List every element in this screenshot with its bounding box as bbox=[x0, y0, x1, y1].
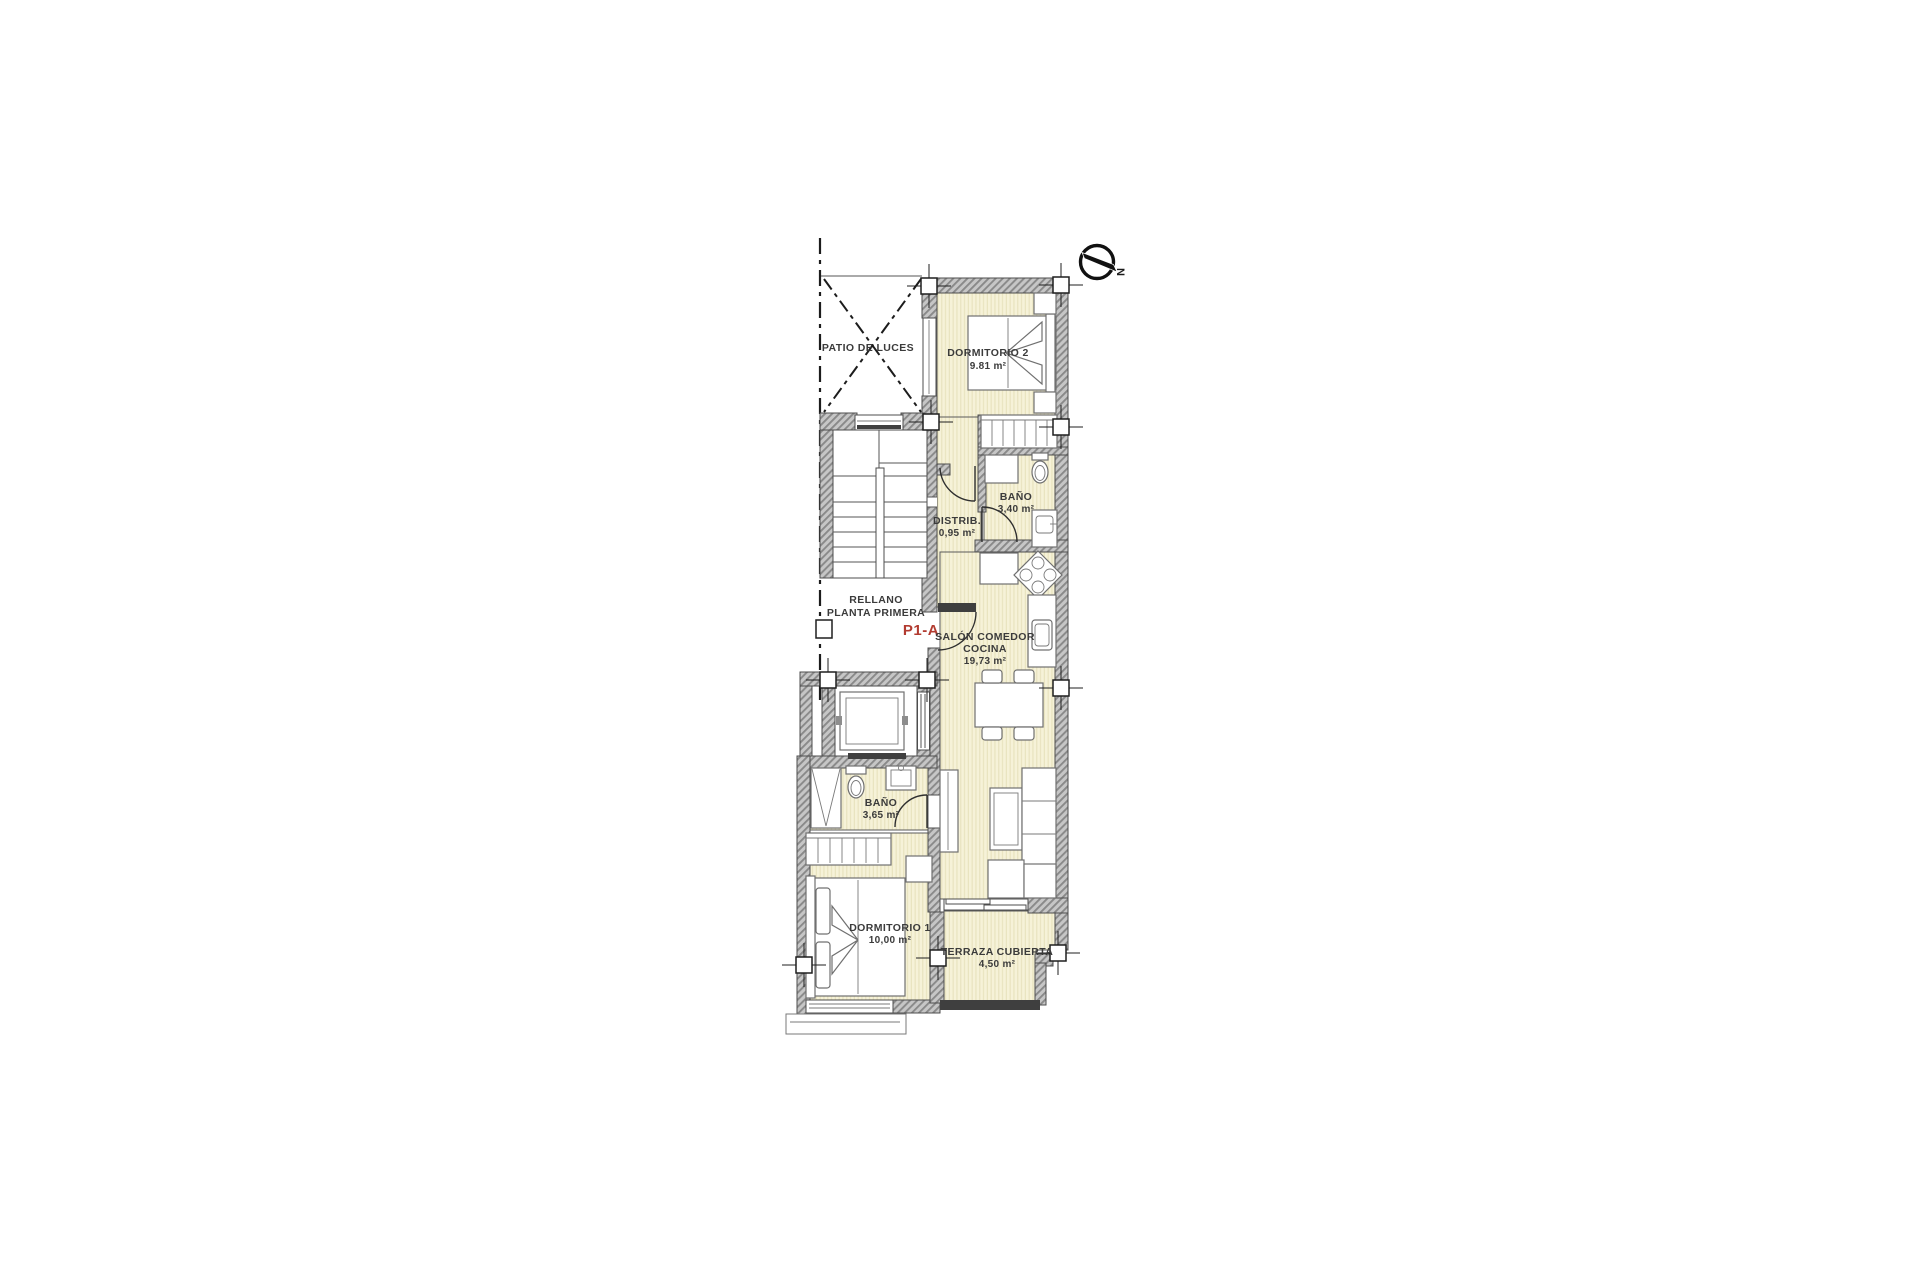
sideboard bbox=[940, 770, 958, 852]
elevator bbox=[836, 692, 930, 759]
floorplan-canvas: N PATIO DE LUCES DORMITORIO 2 9.81 m² BA… bbox=[0, 0, 1920, 1280]
dormitorio1-label: DORMITORIO 1 bbox=[849, 922, 931, 934]
dormitorio2-label: DORMITORIO 2 bbox=[947, 347, 1029, 359]
patio-label: PATIO DE LUCES bbox=[822, 342, 914, 354]
floorplan-drawing: N PATIO DE LUCES DORMITORIO 2 9.81 m² BA… bbox=[0, 0, 1920, 1280]
bathroom-counter bbox=[985, 455, 1018, 483]
terraza-label: TERRAZA CUBIERTA bbox=[941, 946, 1054, 958]
bano-340-area: 3,40 m² bbox=[998, 504, 1035, 515]
staircase bbox=[833, 430, 927, 578]
stair-patio-window bbox=[855, 415, 903, 430]
toilet-icon bbox=[846, 766, 866, 798]
sink-icon bbox=[886, 766, 916, 791]
stair-stringer bbox=[876, 468, 884, 578]
sink-icon bbox=[1032, 620, 1052, 650]
nightstand bbox=[1034, 293, 1056, 314]
nightstand bbox=[906, 856, 932, 882]
unit-label: P1-A bbox=[903, 622, 939, 639]
distrib-area: 0,95 m² bbox=[939, 528, 976, 539]
rellano-label: RELLANO bbox=[849, 594, 903, 606]
salon-label-2: COCINA bbox=[963, 643, 1007, 655]
elevator-threshold bbox=[848, 753, 906, 759]
dormitorio2-patio-window bbox=[923, 318, 936, 396]
wardrobe-dormitorio1 bbox=[806, 833, 891, 865]
elevator-car bbox=[840, 692, 904, 750]
salon-area: 19,73 m² bbox=[964, 656, 1007, 667]
wardrobe-dormitorio2 bbox=[981, 415, 1057, 448]
nightstand bbox=[1034, 392, 1056, 413]
dormitorio1-area: 10,00 m² bbox=[869, 935, 912, 946]
shower bbox=[811, 768, 841, 828]
elevator-door bbox=[918, 692, 930, 750]
bano-340-label: BAÑO bbox=[1000, 490, 1033, 503]
north-compass: N bbox=[1081, 246, 1127, 279]
rellano-label-2: PLANTA PRIMERA bbox=[827, 607, 925, 619]
north-letter: N bbox=[1114, 268, 1126, 276]
tv-unit bbox=[990, 788, 1022, 850]
terraza-area: 4,50 m² bbox=[979, 959, 1016, 970]
dormitorio2-area: 9.81 m² bbox=[970, 361, 1007, 372]
shower bbox=[1032, 510, 1057, 547]
distrib-label: DISTRIB. bbox=[933, 515, 981, 527]
bano-365-label: BAÑO bbox=[865, 796, 898, 809]
salon-label: SALÓN COMEDOR bbox=[935, 630, 1035, 643]
salon-terraza-window bbox=[944, 899, 1028, 910]
toilet-icon bbox=[1032, 453, 1048, 483]
terraza-edge bbox=[940, 1000, 1040, 1010]
bano-365-area: 3,65 m² bbox=[863, 810, 900, 821]
kitchen-counter bbox=[980, 553, 1018, 584]
